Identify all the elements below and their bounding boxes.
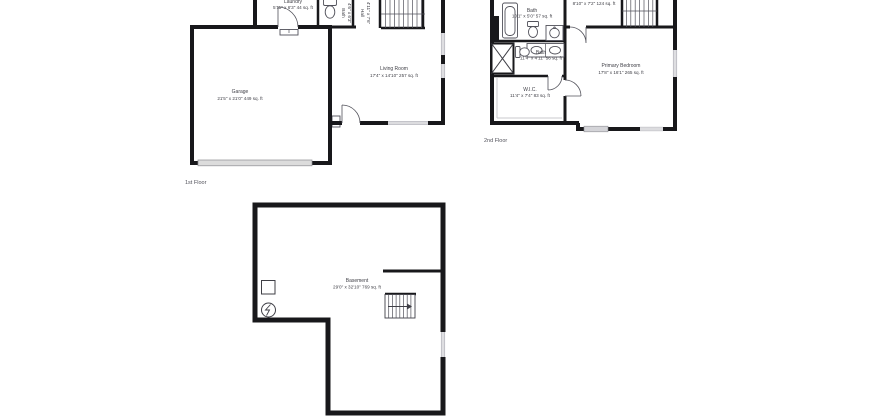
first-floor-walls	[192, 0, 443, 165]
stairs-icon	[385, 294, 416, 318]
first-floor-caption: 1st Floor	[185, 180, 207, 186]
floorplan-image: Laundry 5'11" x 6'3" 44 sq. ft Garage 21…	[0, 0, 870, 420]
upper-hall-dims: 8'10" x 7'2" 124 sq. ft	[573, 1, 617, 6]
basement-window	[440, 332, 446, 357]
bedroom-window-right	[672, 50, 679, 77]
living-room-label: Living Room	[380, 66, 408, 72]
shaft-x-box	[492, 44, 514, 74]
wic-door-arc	[565, 80, 581, 96]
stairs-icon	[381, 0, 425, 28]
laundry-dims: 5'11" x 6'3" 44 sq. ft	[273, 5, 314, 10]
garage-door	[198, 160, 312, 166]
hall-label: Hall	[360, 9, 365, 17]
basement-dims: 29'0" x 32'10" 769 sq. ft	[333, 285, 382, 290]
basement-plan: Basement 29'0" x 32'10" 769 sq. ft	[255, 205, 446, 413]
bathtub-icon	[503, 3, 518, 38]
second-floor-plan: 8'10" x 7'2" 124 sq. ft Bath 10'1" x 5'0…	[484, 0, 678, 144]
stairs-icon	[622, 0, 657, 27]
floor-plan-svg: Laundry 5'11" x 6'3" 44 sq. ft Garage 21…	[0, 0, 870, 420]
first-floor-plan: Laundry 5'11" x 6'3" 44 sq. ft Garage 21…	[185, 0, 446, 186]
living-room-dims: 17'4" x 14'10" 257 sq. ft	[370, 73, 419, 78]
primary-bedroom-label: Primary Bedroom	[602, 63, 641, 69]
living-room-bottom-window	[388, 120, 428, 127]
toilet-icon	[528, 22, 539, 38]
bath-label: Bath	[341, 8, 346, 18]
basement-label: Basement	[346, 278, 369, 284]
garage-dims: 21'5" x 21'0" 449 sq. ft	[217, 96, 263, 101]
front-door-arc	[342, 105, 360, 127]
sliding-door	[584, 126, 608, 132]
toilet-icon	[324, 0, 337, 18]
bath-lower-dims: 11'4" x 4'11" 56 sq. ft	[520, 56, 563, 61]
closet-shelf-lines	[497, 78, 562, 118]
garage-label: Garage	[232, 89, 249, 95]
chimney-block	[490, 16, 499, 40]
bedroom-window-bottom	[640, 126, 663, 133]
hall-dims: 4'11" x 7'6"	[366, 2, 371, 25]
bath-upper-dims: 10'1" x 5'0" 57 sq. ft	[512, 14, 553, 19]
bath-dims: 4'6" x 6'3"	[347, 3, 352, 23]
furnace-icon	[262, 281, 276, 295]
bedroom-door-arc	[570, 27, 586, 43]
water-heater-icon	[262, 303, 276, 317]
wic-dims: 11'4" x 7'4" 83 sq. ft	[510, 93, 551, 98]
bath-door-arc	[548, 76, 562, 90]
laundry-door-arc	[278, 7, 298, 35]
primary-bedroom-dims: 17'8" x 16'1" 265 sq. ft	[598, 70, 644, 75]
second-floor-caption: 2nd Floor	[484, 138, 507, 144]
sink-icon	[546, 26, 563, 41]
